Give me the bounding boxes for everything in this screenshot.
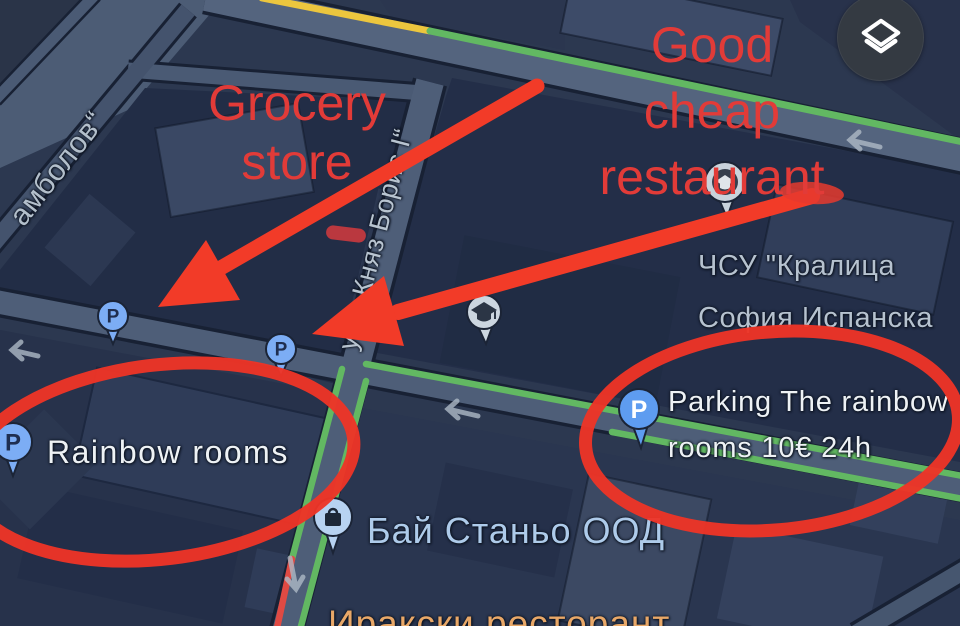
- annotation-restaurant-line1: Good: [562, 12, 862, 78]
- layers-icon: [858, 15, 904, 61]
- map-canvas[interactable]: P P P: [0, 0, 960, 626]
- annotation-red-dash: [325, 225, 366, 244]
- annotation-grocery-store: Grocery store: [177, 74, 417, 192]
- annotation-restaurant-line2: cheap: [562, 78, 862, 144]
- annotation-circle-parking: [577, 316, 960, 546]
- annotation-grocery-line2: store: [177, 133, 417, 192]
- annotation-grocery-line1: Grocery: [177, 74, 417, 133]
- annotation-circle-rainbow-rooms: [0, 342, 365, 582]
- annotation-restaurant-line3: restaurant: [562, 144, 862, 210]
- annotation-good-cheap-restaurant: Good cheap restaurant: [562, 12, 862, 210]
